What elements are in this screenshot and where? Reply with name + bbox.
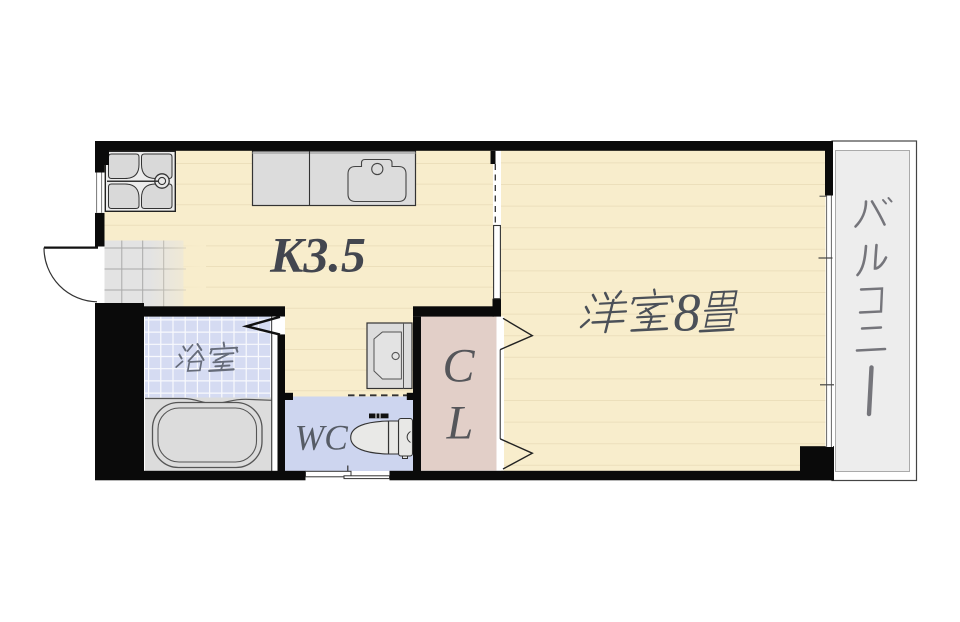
svg-text:8: 8 [674,283,701,343]
svg-text:C: C [442,340,475,393]
svg-text:L: L [446,397,474,450]
svg-text:WC: WC [295,418,349,458]
svg-text:K3.5: K3.5 [269,227,366,283]
